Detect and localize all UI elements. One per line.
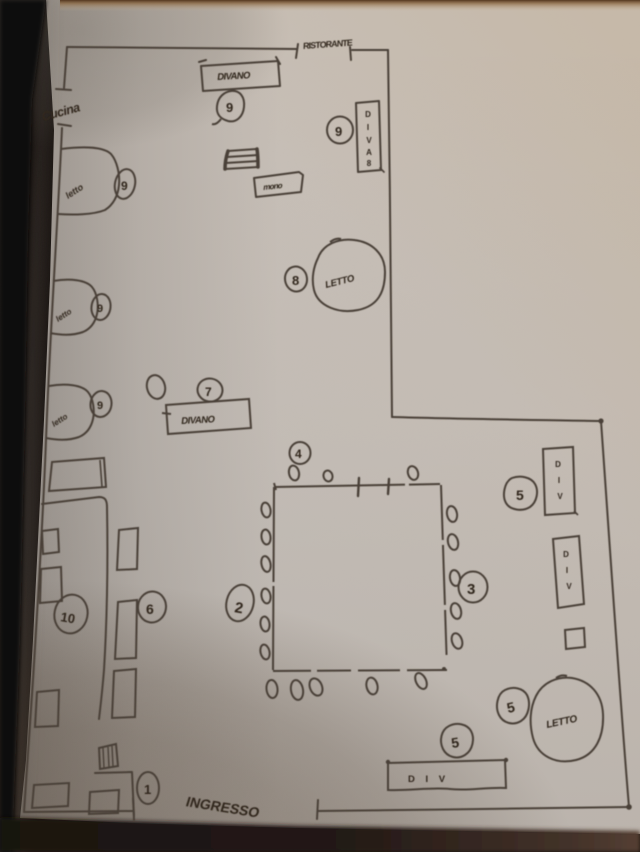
svg-text:A: A xyxy=(366,148,372,157)
svg-text:V: V xyxy=(566,582,572,591)
svg-text:D: D xyxy=(555,460,561,469)
svg-text:3: 3 xyxy=(467,581,475,598)
svg-text:V: V xyxy=(366,136,372,145)
svg-text:9: 9 xyxy=(335,124,342,139)
svg-text:I: I xyxy=(558,476,560,485)
svg-text:I: I xyxy=(566,566,568,575)
svg-text:8: 8 xyxy=(367,159,372,168)
svg-text:D: D xyxy=(365,110,371,119)
svg-text:DIVANO: DIVANO xyxy=(181,414,217,427)
svg-text:9: 9 xyxy=(97,303,103,315)
svg-text:4: 4 xyxy=(295,447,302,461)
svg-text:V: V xyxy=(557,492,563,501)
svg-text:9: 9 xyxy=(97,400,103,412)
svg-text:7: 7 xyxy=(205,385,212,399)
svg-text:9: 9 xyxy=(121,179,128,193)
svg-text:DIVANO: DIVANO xyxy=(217,70,252,83)
svg-text:9: 9 xyxy=(226,100,233,115)
svg-text:1: 1 xyxy=(144,782,151,797)
svg-text:D I V: D I V xyxy=(408,774,449,785)
svg-text:10: 10 xyxy=(59,609,76,626)
svg-text:I: I xyxy=(367,123,369,132)
svg-text:6: 6 xyxy=(146,601,154,617)
svg-text:5: 5 xyxy=(516,487,524,503)
svg-text:D: D xyxy=(563,550,569,559)
svg-text:8: 8 xyxy=(292,273,299,288)
